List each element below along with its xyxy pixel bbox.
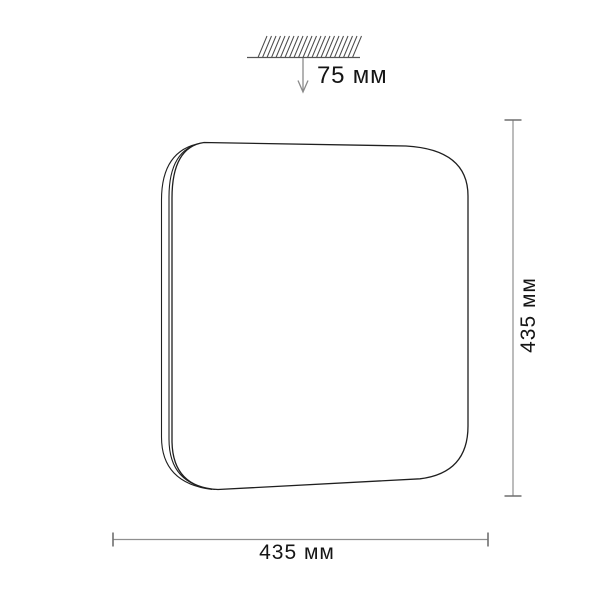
- hatch-stroke: [285, 36, 294, 58]
- hatch-stroke: [312, 36, 321, 58]
- ceiling-hatch: [258, 36, 362, 58]
- height-dimension-label: 435 мм: [517, 277, 541, 353]
- hatch-stroke: [294, 36, 303, 58]
- hatch-stroke: [281, 36, 290, 58]
- hatch-stroke: [335, 36, 344, 58]
- hatch-stroke: [339, 36, 348, 58]
- hatch-stroke: [303, 36, 312, 58]
- diagram-canvas: 75 мм 435 мм 435 мм: [0, 0, 600, 600]
- hatch-stroke: [267, 36, 276, 58]
- hatch-stroke: [258, 36, 267, 58]
- width-dimension-label: 435 мм: [238, 541, 356, 565]
- hatch-stroke: [276, 36, 285, 58]
- hatch-stroke: [353, 36, 362, 58]
- hatch-stroke: [317, 36, 326, 58]
- hatch-stroke: [344, 36, 353, 58]
- hatch-stroke: [290, 36, 299, 58]
- hatch-stroke: [330, 36, 339, 58]
- down-arrow-icon: [298, 58, 308, 92]
- hatch-stroke: [326, 36, 335, 58]
- dimension-drawing: [0, 0, 600, 600]
- hatch-stroke: [308, 36, 317, 58]
- hatch-stroke: [272, 36, 281, 58]
- hatch-stroke: [321, 36, 330, 58]
- fixture-front-face: [172, 143, 468, 490]
- ceiling-offset-label: 75 мм: [317, 62, 387, 90]
- fixture-outline: [162, 143, 469, 490]
- hatch-stroke: [348, 36, 357, 58]
- hatch-stroke: [263, 36, 272, 58]
- hatch-stroke: [299, 36, 308, 58]
